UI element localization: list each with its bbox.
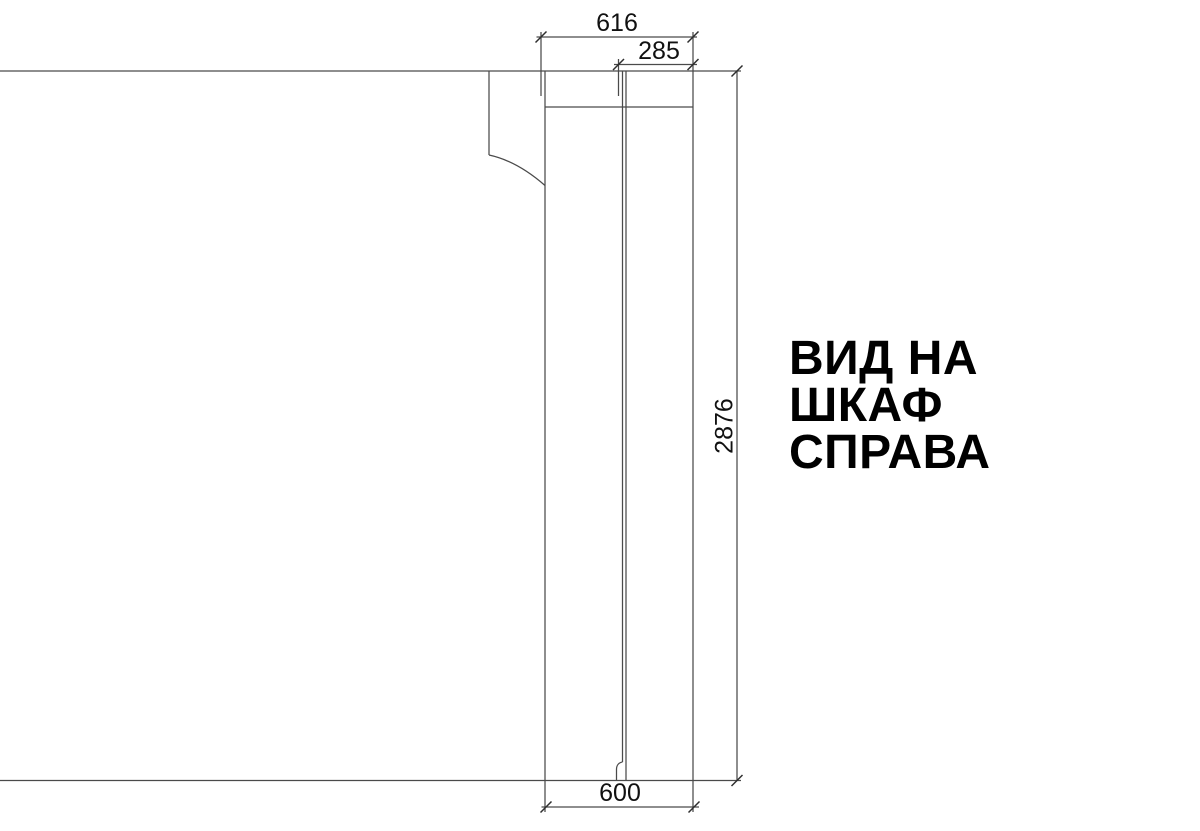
side-profile-curve	[489, 155, 545, 186]
dimension-label-top-width: 616	[596, 11, 638, 36]
drawing-canvas: 616 285 2876 600 ВИД НА ШКАФ СПРАВА	[0, 0, 1200, 831]
inner-line-foot	[617, 762, 623, 781]
view-title-line-3: СПРАВА	[789, 429, 991, 476]
view-title-line-1: ВИД НА	[789, 335, 991, 382]
dimension-label-bottom-depth: 600	[599, 781, 641, 806]
view-title-line-2: ШКАФ	[789, 382, 991, 429]
view-title: ВИД НА ШКАФ СПРАВА	[789, 335, 991, 476]
dimension-label-height: 2876	[713, 398, 738, 454]
cabinet-side-view-drawing	[0, 0, 1200, 831]
dimension-label-front-depth: 285	[638, 39, 680, 64]
